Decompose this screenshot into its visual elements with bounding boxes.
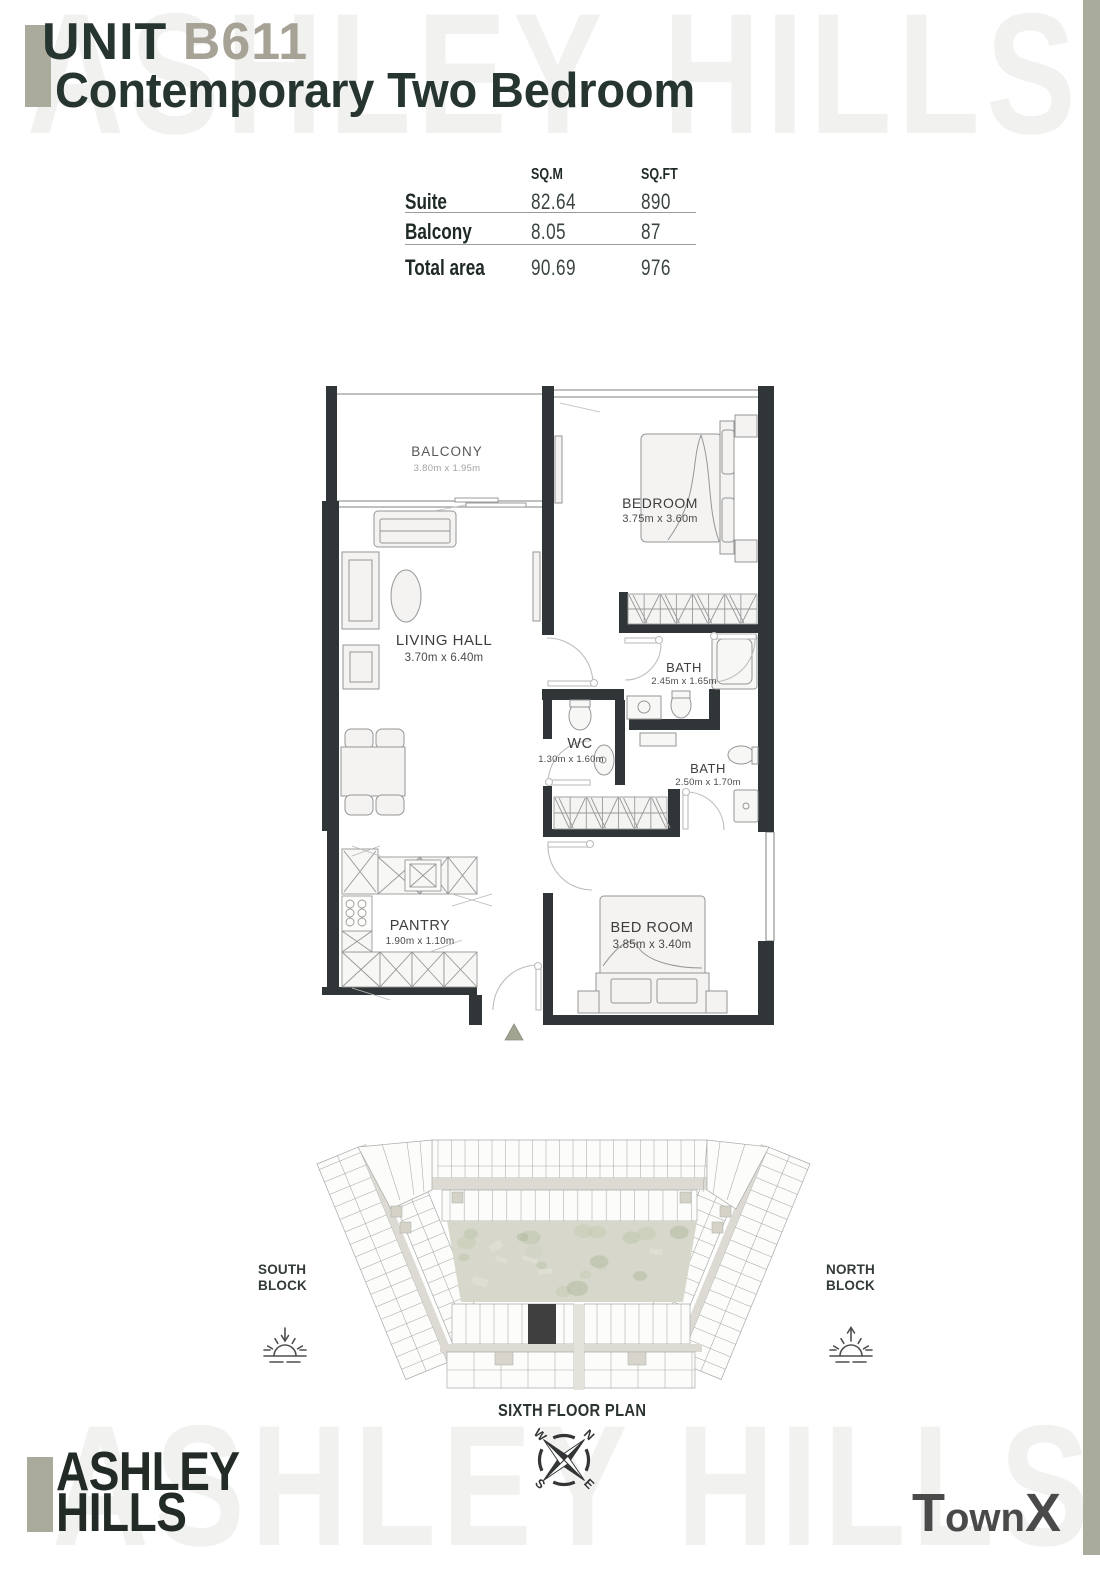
svg-text:S: S — [532, 1476, 548, 1492]
svg-text:3.70m x 6.40m: 3.70m x 6.40m — [405, 652, 484, 664]
svg-text:BALCONY: BALCONY — [411, 444, 483, 459]
svg-text:1.90m x 1.10m: 1.90m x 1.10m — [386, 936, 455, 947]
svg-text:PANTRY: PANTRY — [390, 918, 450, 934]
svg-text:3.75m x 3.60m: 3.75m x 3.60m — [622, 513, 697, 525]
svg-text:3.85m x 3.40m: 3.85m x 3.40m — [613, 939, 692, 951]
svg-text:BATH: BATH — [666, 660, 702, 675]
svg-text:WC: WC — [567, 736, 592, 752]
svg-text:2.45m x 1.65m: 2.45m x 1.65m — [651, 676, 716, 687]
svg-text:3.80m x 1.95m: 3.80m x 1.95m — [414, 463, 481, 474]
svg-text:BATH: BATH — [690, 761, 726, 776]
svg-text:LIVING HALL: LIVING HALL — [396, 632, 492, 649]
svg-text:2.50m x 1.70m: 2.50m x 1.70m — [675, 777, 740, 788]
svg-text:1.30m x 1.60m: 1.30m x 1.60m — [538, 754, 603, 765]
svg-text:BED ROOM: BED ROOM — [611, 920, 694, 936]
svg-text:BEDROOM: BEDROOM — [622, 495, 698, 511]
